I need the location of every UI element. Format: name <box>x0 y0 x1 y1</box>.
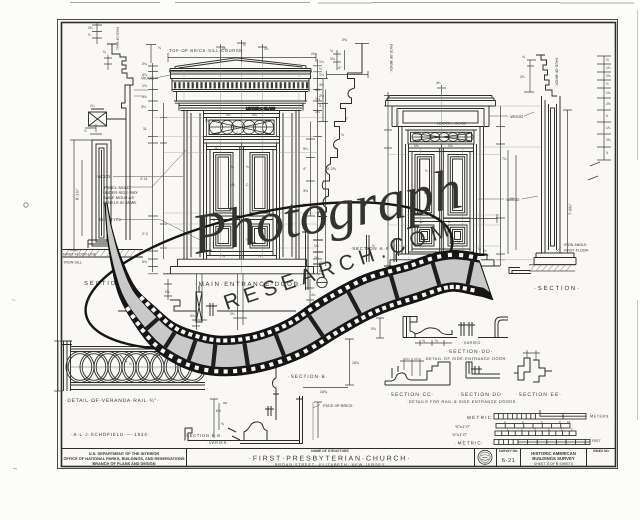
svg-text:8'-1⅛": 8'-1⅛" <box>75 188 80 200</box>
svg-text:·SECTION·CC·: ·SECTION·CC· <box>388 392 434 398</box>
svg-text:FACE·OF·WALL: FACE·OF·WALL <box>116 27 120 51</box>
svg-text:2⅜: 2⅜ <box>606 138 611 142</box>
svg-text:2¾: 2¾ <box>520 75 525 79</box>
svg-text:11: 11 <box>143 127 147 131</box>
svg-text:INDEX NO.: INDEX NO. <box>593 449 609 453</box>
svg-text:¾"=1'-0": ¾"=1'-0" <box>452 432 468 437</box>
svg-text:2½: 2½ <box>606 102 611 106</box>
svg-text:FACE·OF·BRICK: FACE·OF·BRICK <box>555 58 559 86</box>
svg-text:·TOP·OF·BRICK·SILL·COURSE·: ·TOP·OF·BRICK·SILL·COURSE· <box>167 48 245 53</box>
svg-text:6: 6 <box>606 114 608 118</box>
svg-text:¾: ¾ <box>606 82 609 86</box>
svg-text:FEET: FEET <box>592 439 601 443</box>
svg-text:·SECTION·B·B·: ·SECTION·B·B· <box>184 433 223 438</box>
svg-text:4'-11: 4'-11 <box>140 177 148 181</box>
svg-text:4¼: 4¼ <box>311 293 316 297</box>
svg-text:·VARIES·: ·VARIES· <box>462 341 482 345</box>
svg-text:3½: 3½ <box>190 314 195 318</box>
svg-text:·WOOD·: ·WOOD· <box>505 197 521 202</box>
svg-text:¾: ¾ <box>231 165 234 169</box>
svg-text:2⅛: 2⅛ <box>142 62 147 66</box>
svg-text:·FIRST·FLOOR·: ·FIRST·FLOOR· <box>563 249 589 253</box>
svg-text:⅜: ⅜ <box>422 339 425 343</box>
svg-text:6½: 6½ <box>216 409 221 413</box>
svg-text:·SECTION·EE·: ·SECTION·EE· <box>516 392 562 398</box>
svg-text:·A·L·J·SCHOFIELD·—·1934·: ·A·L·J·SCHOFIELD·—·1934· <box>71 432 150 437</box>
svg-text:BRANCH OF PLANS AND DESIGN: BRANCH OF PLANS AND DESIGN <box>93 461 156 466</box>
svg-text:⅜: ⅜ <box>435 339 438 343</box>
svg-text:¾: ¾ <box>457 240 460 244</box>
svg-text:⅛: ⅛ <box>103 50 106 54</box>
svg-text:4¾: 4¾ <box>436 81 441 85</box>
svg-text:4½: 4½ <box>230 183 235 187</box>
svg-text:6-21: 6-21 <box>502 457 516 464</box>
svg-text:1¾: 1¾ <box>222 47 227 51</box>
svg-text:10⅜: 10⅜ <box>320 390 327 394</box>
svg-text:1¼: 1¼ <box>414 357 419 361</box>
svg-text:·FACE·OF·BRICK·: ·FACE·OF·BRICK· <box>322 404 354 408</box>
svg-text:·METRIC·: ·METRIC· <box>455 441 484 446</box>
svg-text:·SECTION·: ·SECTION· <box>534 285 581 292</box>
svg-text:·WOOD·: ·WOOD· <box>509 114 525 119</box>
svg-text:1¾: 1¾ <box>606 126 611 130</box>
svg-text:FACE·OF·BRICK·: FACE·OF·BRICK· <box>389 44 393 73</box>
svg-text:9½: 9½ <box>142 95 147 99</box>
svg-text:¾: ¾ <box>246 165 249 169</box>
svg-text:2'-2: 2'-2 <box>142 232 148 236</box>
svg-text:1½: 1½ <box>319 73 324 77</box>
svg-text:1½: 1½ <box>330 57 335 61</box>
svg-text:5⅛: 5⅛ <box>165 290 170 294</box>
svg-text:7'-8⅜": 7'-8⅜" <box>568 203 573 215</box>
svg-text:1¾: 1¾ <box>264 47 269 51</box>
svg-text:4½: 4½ <box>315 88 320 92</box>
svg-text:¾: ¾ <box>84 129 87 133</box>
svg-text:2⅜: 2⅜ <box>342 38 347 42</box>
svg-text:METRIC: METRIC <box>467 415 492 420</box>
svg-text:1⅛: 1⅛ <box>315 97 320 101</box>
svg-text:·SECTION·B·: ·SECTION·B· <box>288 374 328 380</box>
svg-text:2¾: 2¾ <box>314 256 319 260</box>
svg-text:3: 3 <box>606 151 608 155</box>
svg-text:PANELS·IN·JAMB·: PANELS·IN·JAMB· <box>103 200 137 205</box>
svg-text:7¼: 7¼ <box>502 157 507 161</box>
svg-text:2⅛: 2⅛ <box>311 52 316 56</box>
svg-text:○: ○ <box>236 130 238 134</box>
svg-text:SURVEY NO.: SURVEY NO. <box>499 449 519 453</box>
svg-text:¾: ¾ <box>484 249 487 253</box>
svg-text:⅛: ⅛ <box>478 247 481 251</box>
svg-text:10: 10 <box>567 420 571 424</box>
svg-text:3: 3 <box>319 104 321 108</box>
svg-text:·WOOD·: ·WOOD· <box>140 76 156 81</box>
svg-text:·BROAD·STREET··ELIZABETH··NEW·: ·BROAD·STREET··ELIZABETH··NEW·JERSEY· <box>273 462 388 467</box>
svg-text:8'-2⅛: 8'-2⅛ <box>327 167 336 171</box>
svg-text:10⅜: 10⅜ <box>352 361 359 365</box>
svg-text:1½: 1½ <box>414 144 419 148</box>
svg-text:METERS: METERS <box>590 415 609 419</box>
svg-text:2⅜: 2⅜ <box>606 74 611 78</box>
svg-text:BUILDINGS SURVEY: BUILDINGS SURVEY <box>532 456 575 461</box>
svg-text:·IRON·ANGLE·: ·IRON·ANGLE· <box>563 243 588 247</box>
svg-text:NAME OF STRUCTURE: NAME OF STRUCTURE <box>311 449 349 453</box>
svg-text:·DETAIL·OF·SIDE·ENTRANCE·DOOR·: ·DETAIL·OF·SIDE·ENTRANCE·DOOR· <box>424 356 508 361</box>
svg-text:1¾: 1¾ <box>226 113 231 117</box>
svg-text:1⅛: 1⅛ <box>606 91 611 95</box>
svg-text:¾: ¾ <box>129 362 132 366</box>
svg-text:4¾: 4¾ <box>214 147 219 151</box>
svg-text:·SECTION·DD·: ·SECTION·DD· <box>458 392 504 398</box>
svg-text:SHEET 3 OF 6 SHEETS: SHEET 3 OF 6 SHEETS <box>534 461 574 466</box>
svg-text:2¼: 2¼ <box>90 104 95 108</box>
svg-text:¾: ¾ <box>243 43 246 47</box>
svg-text:FIRST·FLOOR·LINE: FIRST·FLOOR·LINE <box>63 253 97 257</box>
svg-text:1½: 1½ <box>448 144 453 148</box>
svg-text:1¾: 1¾ <box>88 26 93 30</box>
svg-text:5⅜: 5⅜ <box>371 327 376 331</box>
svg-text:5⅛: 5⅛ <box>252 113 257 117</box>
svg-text:LEADED·□·GLASS: LEADED·□·GLASS <box>246 107 276 111</box>
svg-text:⅛: ⅛ <box>522 55 525 59</box>
svg-text:·DETAILS·FOR·RAIL·&·SIDE·ENTRA: ·DETAILS·FOR·RAIL·&·SIDE·ENTRANCE·DOORS· <box>407 399 518 404</box>
svg-text:1½: 1½ <box>205 119 210 123</box>
svg-text:·VARIES·: ·VARIES· <box>207 440 229 445</box>
svg-text:⅜"=1'-0": ⅜"=1'-0" <box>455 424 471 429</box>
svg-text:⅜: ⅜ <box>606 58 609 62</box>
svg-text:·IRON·SILL·: ·IRON·SILL· <box>63 261 83 265</box>
svg-text:¾: ¾ <box>88 33 91 37</box>
svg-text:·DETAIL·OF·VERANDA·RAIL·¾"·: ·DETAIL·OF·VERANDA·RAIL·¾"· <box>65 398 159 404</box>
svg-text:1¾: 1¾ <box>606 66 611 70</box>
svg-text:1¼: 1¼ <box>405 357 410 361</box>
svg-text:·SECTION·DD·: ·SECTION·DD· <box>446 349 494 355</box>
